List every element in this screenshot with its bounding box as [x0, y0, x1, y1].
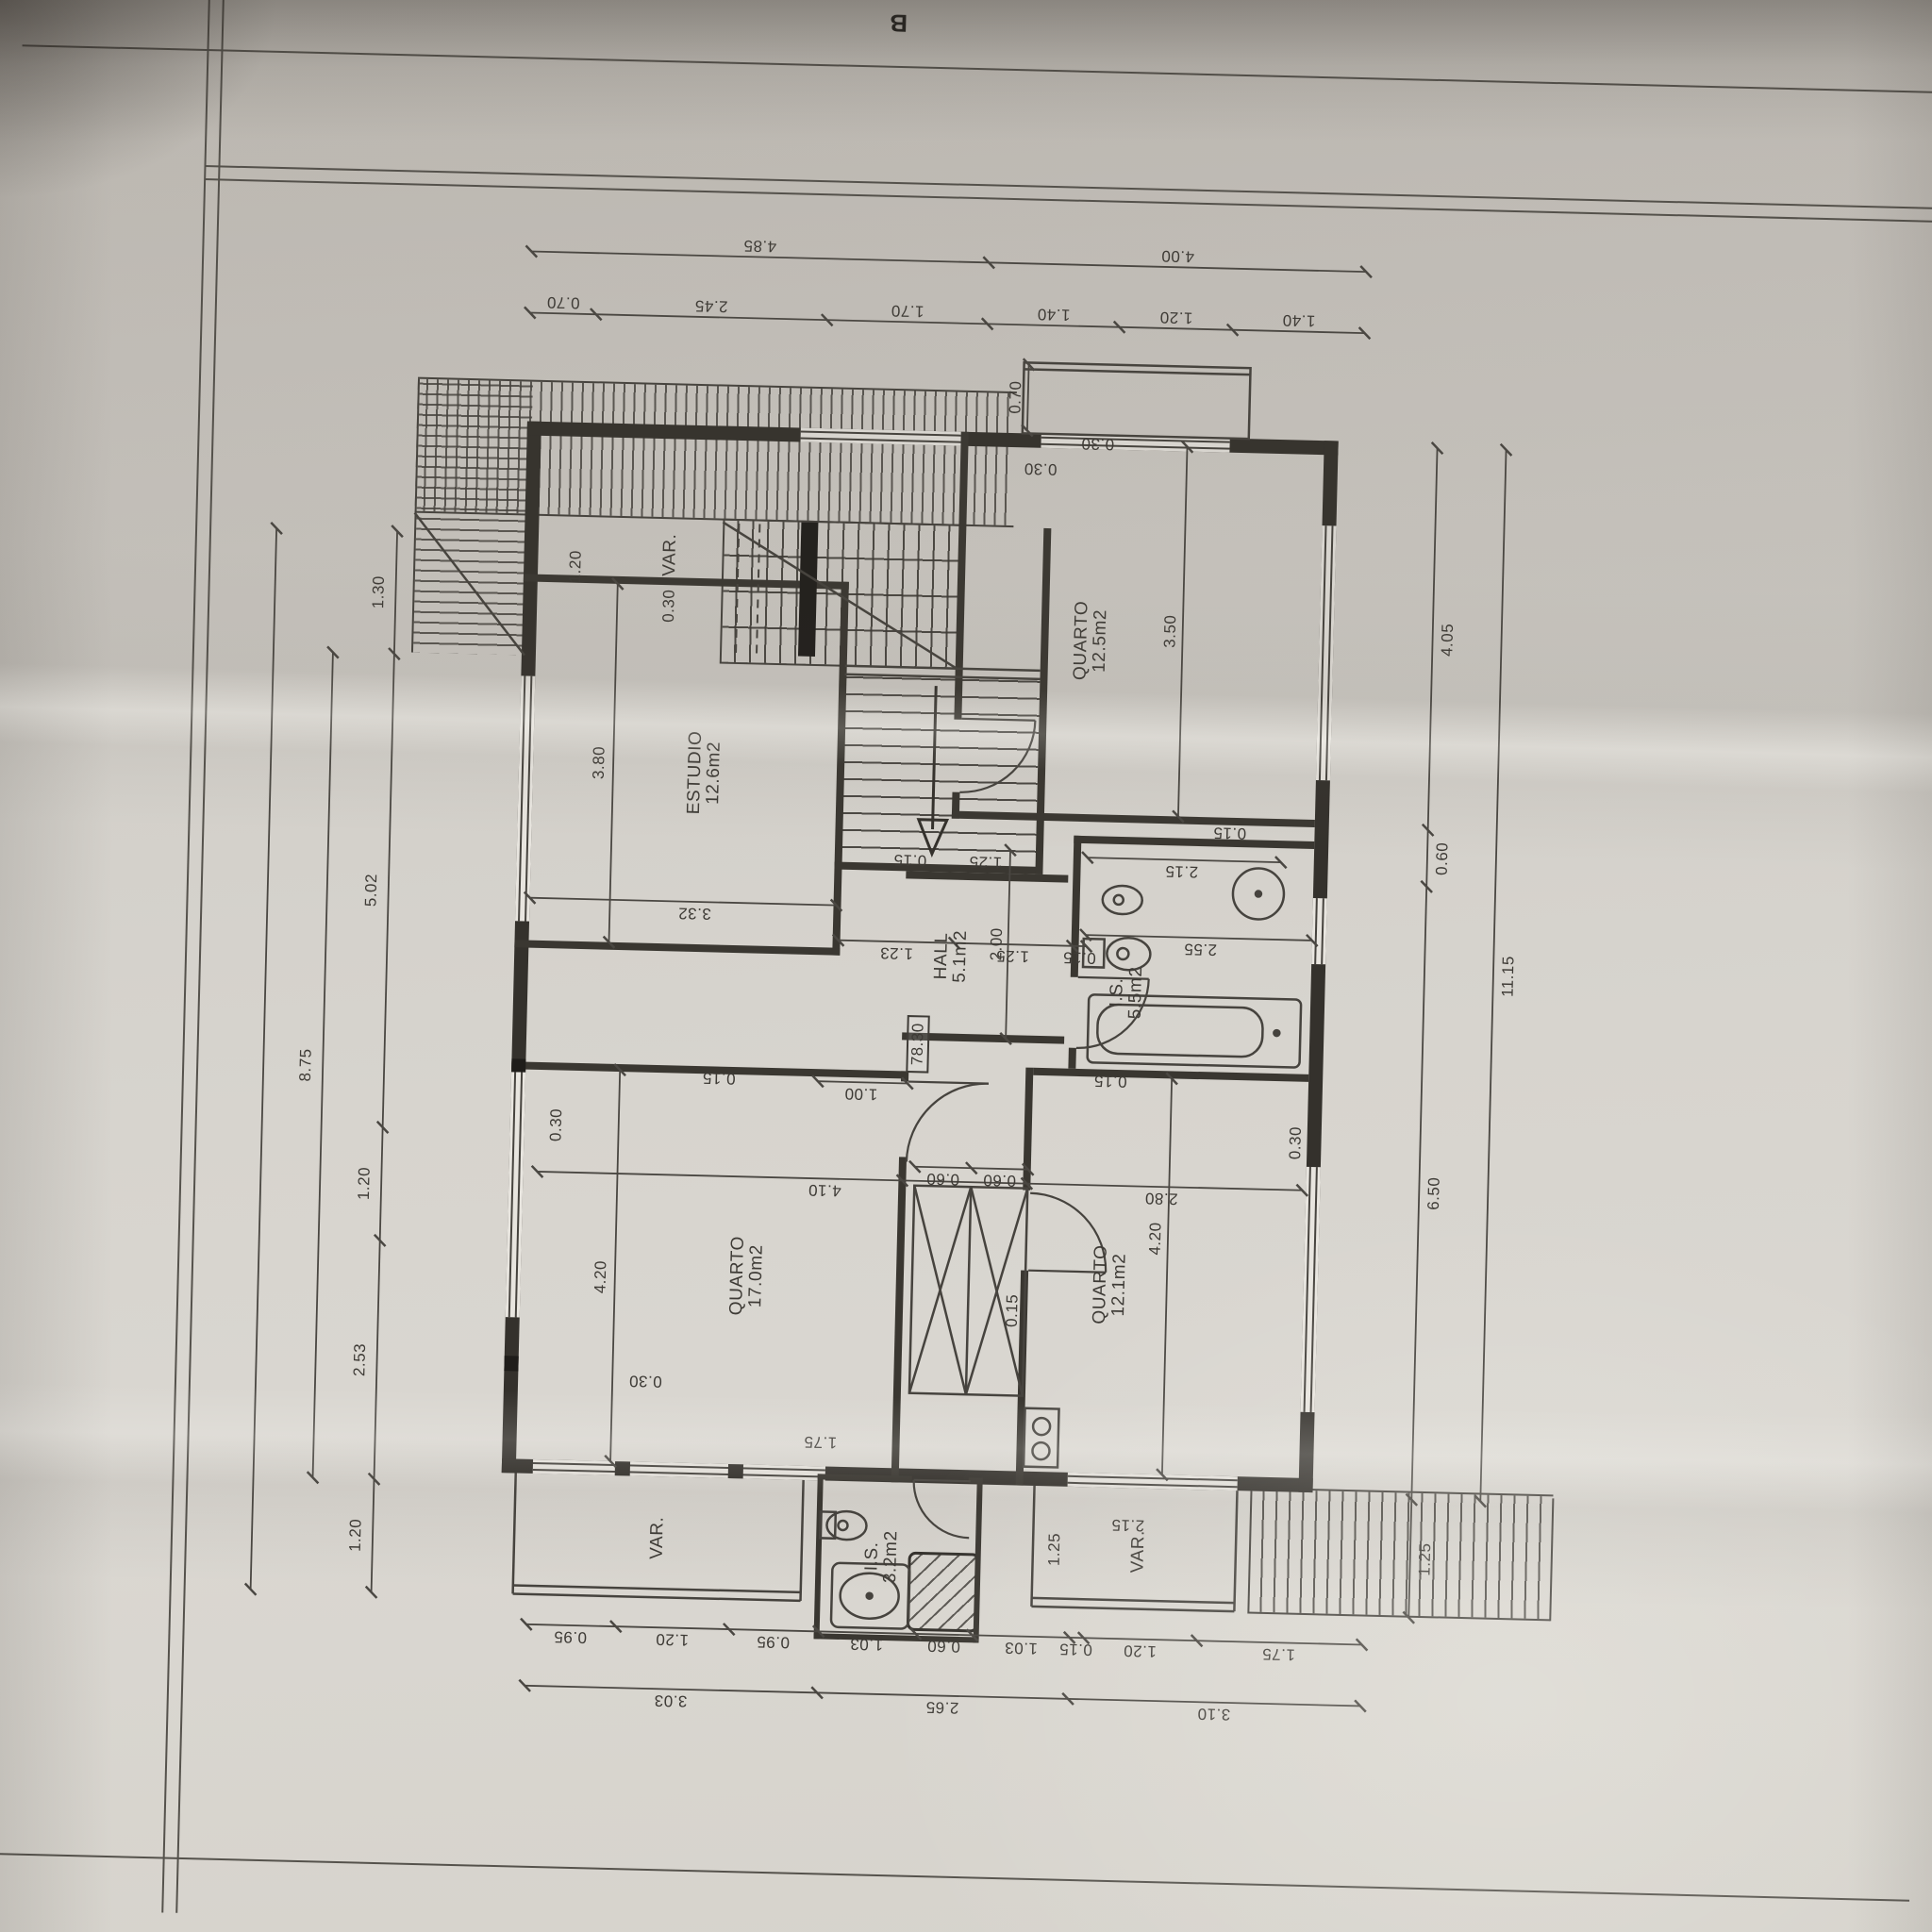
dim-label: 0.15 — [1059, 1641, 1093, 1658]
dim-label: 4.00 — [1161, 247, 1195, 265]
room-label-is-552: I.S.5.5m2 — [1108, 966, 1146, 1020]
dim-label: 4.20 — [1147, 1222, 1165, 1256]
dim-label: 1.20 — [656, 1630, 690, 1648]
dim-label: 1.40 — [1282, 311, 1316, 329]
dim-label: 2.80 — [1144, 1190, 1178, 1207]
balcony-label: VAR. — [1128, 1530, 1148, 1574]
dim-label: 0.15 — [1093, 1072, 1127, 1090]
dim-label: 4.20 — [591, 1260, 609, 1294]
photographed-floorplan-sheet: 1.202.531.205.021.308.750.702.451.701.40… — [0, 0, 1932, 1932]
dim-label: 0.30 — [1081, 435, 1115, 453]
dim-label: 2.53 — [351, 1343, 369, 1377]
dim-label: 0.60 — [927, 1637, 961, 1655]
dim-label: 1.23 — [880, 944, 914, 962]
dim-label: 4.05 — [1439, 624, 1457, 658]
dim-label: 2.15 — [1165, 862, 1199, 880]
dim-label: 1.20 — [356, 1167, 374, 1201]
dim-label: 3.03 — [654, 1691, 688, 1709]
dim-label: 1.40 — [1037, 306, 1071, 324]
dim-label: 3.50 — [1161, 614, 1179, 648]
dim-label: 0.60 — [926, 1170, 960, 1188]
dim-label: 1.25 — [1416, 1542, 1434, 1576]
dim-label: 0.95 — [757, 1633, 791, 1651]
dim-label: 0.70 — [546, 293, 580, 311]
dim-label: 11.15 — [1499, 956, 1517, 997]
dim-label: 0.30 — [547, 1108, 565, 1142]
room-label-hall-512: HALL5.1m2 — [932, 929, 971, 983]
dim-label: 0.30 — [1024, 459, 1058, 477]
dim-label: 2.65 — [925, 1698, 959, 1716]
dim-label: 1.75 — [804, 1433, 838, 1451]
dim-label: 1.20 — [1159, 308, 1193, 326]
dim-label: 1.20 — [1124, 1641, 1158, 1659]
plan-sheet-rotated: 1.202.531.205.021.308.750.702.451.701.40… — [0, 0, 1932, 1932]
dim-label: 0.15 — [702, 1069, 736, 1087]
dim-label: 4.10 — [808, 1181, 841, 1199]
dim-label: 1.03 — [1005, 1639, 1039, 1657]
dim-label: 1.70 — [891, 302, 924, 320]
dim-label: 0.60 — [1434, 842, 1452, 876]
dim-label: 1.25 — [969, 853, 1003, 871]
room-label-quarto-1212: QUARTO12.1m2 — [1091, 1244, 1130, 1324]
dim-label: 1.30 — [370, 575, 388, 609]
dim-label: 3.32 — [678, 905, 712, 923]
dim-label: 2.00 — [988, 927, 1006, 961]
dim-label: 2.45 — [694, 297, 728, 315]
elevation-level-label: 78.30 — [906, 1015, 929, 1074]
dim-label: 1.75 — [1262, 1645, 1296, 1663]
sheet-frame-letter: B — [889, 9, 908, 36]
room-label-is-322: I.S.3.2m2 — [862, 1530, 901, 1584]
dim-label: 0.30 — [660, 589, 678, 623]
room-label-quarto-1702: QUARTO17.0m2 — [727, 1236, 767, 1316]
dim-label: 0.70 — [1007, 380, 1024, 414]
dim-label: 1.25 — [1046, 1533, 1064, 1567]
dim-label: 0.15 — [1213, 824, 1247, 841]
dim-label: 1.20 — [347, 1519, 365, 1553]
dim-label: 0.15 — [1004, 1294, 1022, 1328]
dim-label: 0.15 — [1062, 949, 1096, 967]
dim-label: 0.60 — [983, 1172, 1017, 1190]
balcony-label: VAR. — [648, 1516, 668, 1559]
balcony-label: VAR. — [660, 533, 680, 576]
dim-label: 3.10 — [1197, 1705, 1231, 1723]
dim-label: 2.55 — [1184, 941, 1218, 958]
dim-label: 1.03 — [850, 1635, 884, 1653]
room-label-quarto-1252: QUARTO12.5m2 — [1072, 601, 1111, 681]
dim-label: 6.50 — [1425, 1176, 1443, 1210]
dim-label: 0.95 — [554, 1628, 588, 1646]
dim-label: 0.30 — [1287, 1126, 1305, 1160]
dim-label: 8.75 — [297, 1048, 315, 1082]
dim-label: 3.80 — [591, 746, 608, 780]
dim-label: 0.30 — [628, 1372, 662, 1390]
dim-label: 5.02 — [362, 874, 380, 908]
room-label-estudio-1262: ESTUDIO12.6m2 — [685, 730, 724, 815]
dim-label: 1.20 — [567, 550, 585, 584]
dim-label: 4.85 — [743, 237, 777, 255]
dim-label: 0.15 — [893, 851, 927, 869]
dimension-and-room-labels: 1.202.531.205.021.308.750.702.451.701.40… — [0, 0, 1932, 1932]
dim-label: 1.00 — [844, 1085, 878, 1103]
